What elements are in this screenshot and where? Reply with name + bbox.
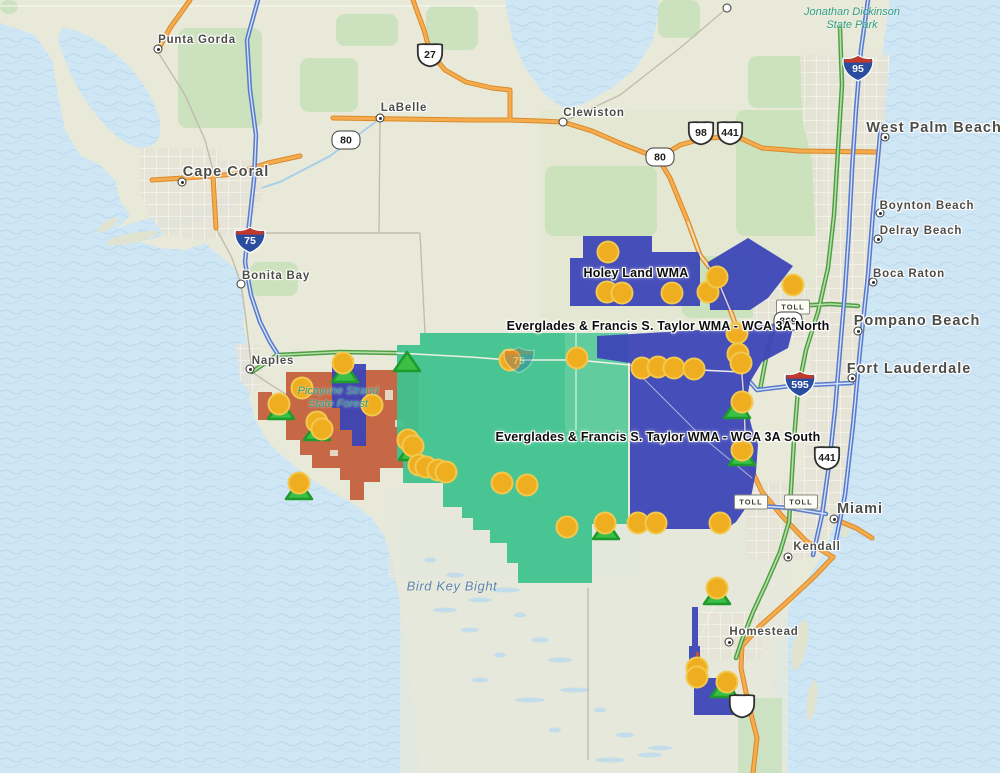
wma-marker[interactable] xyxy=(707,578,728,599)
map-canvas[interactable]: 278080 98 441 95 75 75 595 441TOLL869TOL… xyxy=(0,0,1000,773)
wma-marker[interactable] xyxy=(500,350,521,371)
basemap-svg xyxy=(0,0,1000,773)
wma-marker[interactable] xyxy=(557,517,578,538)
wma-marker[interactable] xyxy=(436,462,457,483)
wma-marker[interactable] xyxy=(612,283,633,304)
park-patch xyxy=(426,6,478,50)
wma-marker[interactable] xyxy=(717,672,738,693)
park-patch xyxy=(300,58,358,112)
wma-marker[interactable] xyxy=(783,275,804,296)
park-patch xyxy=(250,262,298,296)
park-patch xyxy=(336,14,398,46)
wma-marker[interactable] xyxy=(362,395,383,416)
wma-marker[interactable] xyxy=(269,394,290,415)
wma-marker[interactable] xyxy=(312,419,333,440)
wma-marker[interactable] xyxy=(598,242,619,263)
urban-cape-coral xyxy=(140,148,262,240)
wma-marker[interactable] xyxy=(710,513,731,534)
wma-marker[interactable] xyxy=(289,473,310,494)
mangrove-patch xyxy=(738,698,782,773)
wma-marker[interactable] xyxy=(727,323,748,344)
wma-marker[interactable] xyxy=(517,475,538,496)
wma-marker[interactable] xyxy=(707,267,728,288)
wma-marker[interactable] xyxy=(687,667,708,688)
wma-marker[interactable] xyxy=(664,358,685,379)
park-patch xyxy=(658,0,700,38)
wma-marker[interactable] xyxy=(731,353,752,374)
wma-marker[interactable] xyxy=(646,513,667,534)
wma-marker[interactable] xyxy=(403,436,424,457)
park-patch xyxy=(0,0,18,14)
wma-marker[interactable] xyxy=(732,440,753,461)
island xyxy=(841,526,849,538)
wma-marker[interactable] xyxy=(567,348,588,369)
wma-polygon-south-strip[interactable] xyxy=(692,607,698,646)
park-patch xyxy=(545,166,657,236)
wma-marker[interactable] xyxy=(662,283,683,304)
wma-marker[interactable] xyxy=(292,378,313,399)
wma-marker[interactable] xyxy=(595,513,616,534)
wma-marker[interactable] xyxy=(732,392,753,413)
wma-marker[interactable] xyxy=(492,473,513,494)
wma-marker[interactable] xyxy=(684,359,705,380)
wma-marker[interactable] xyxy=(333,353,354,374)
